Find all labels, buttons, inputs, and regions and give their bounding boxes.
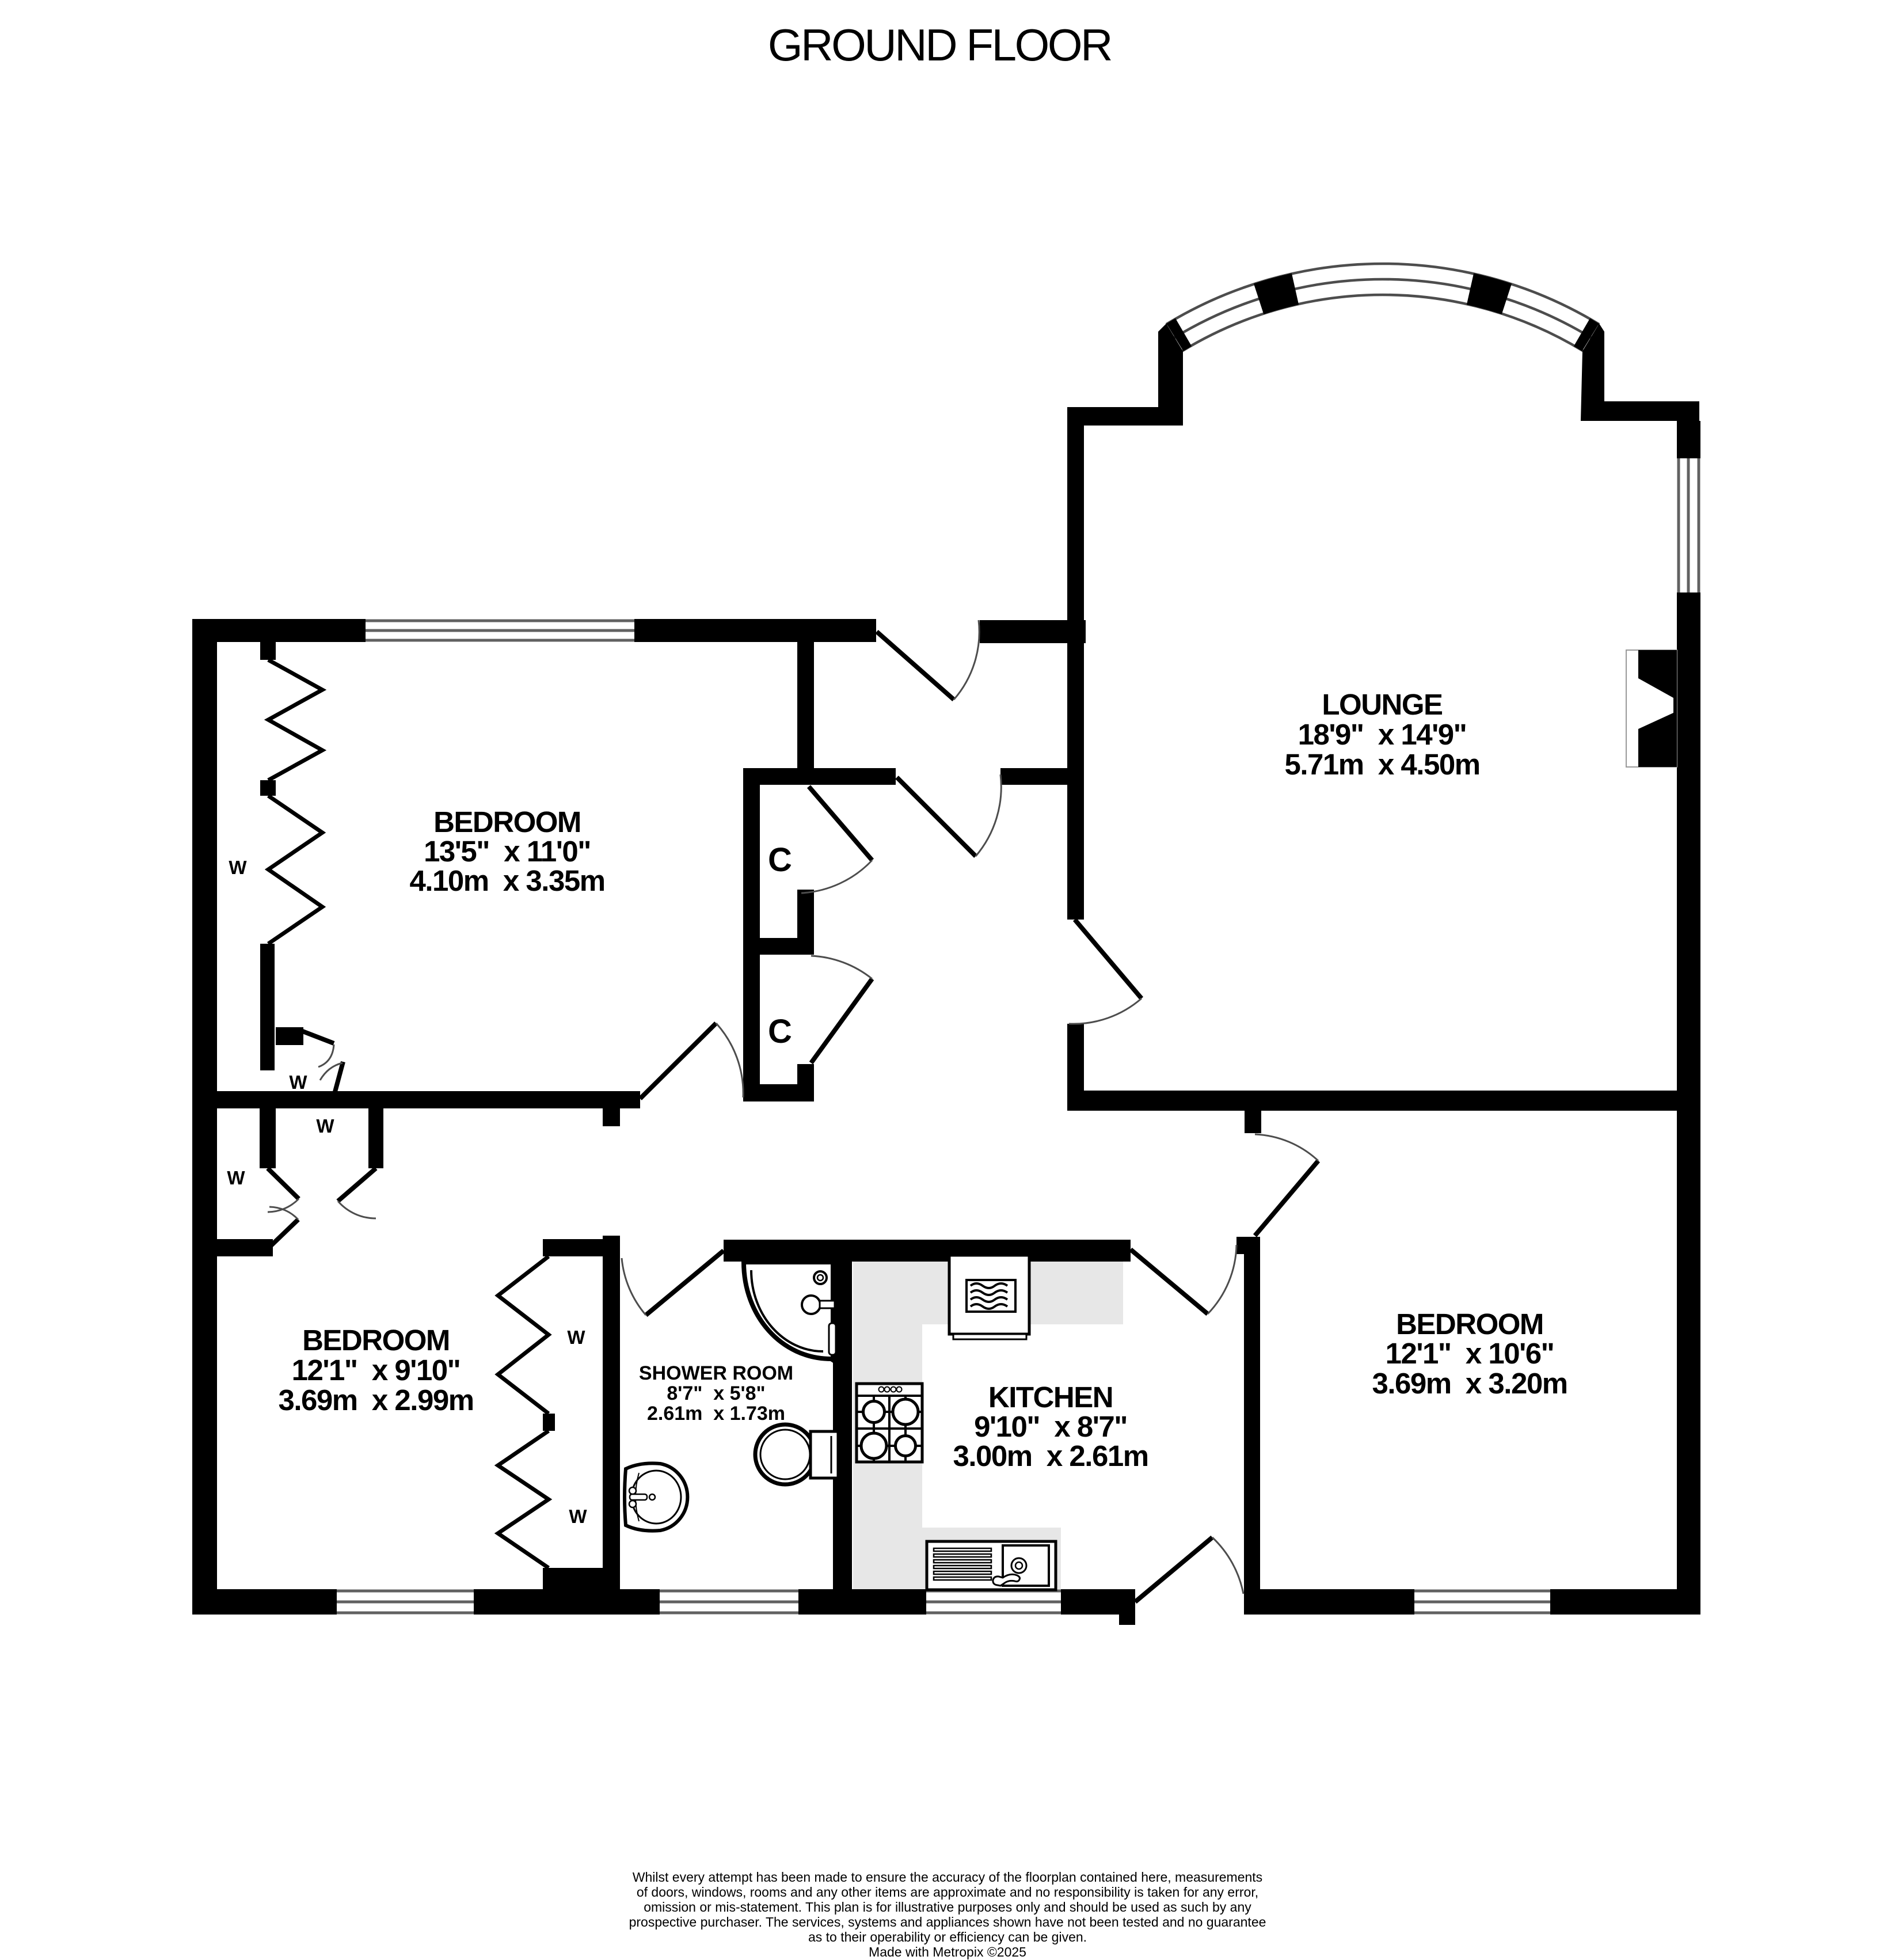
svg-text:W: W (229, 857, 247, 878)
svg-text:omission or mis-statement. Thi: omission or mis-statement. This plan is … (644, 1900, 1251, 1915)
svg-text:Made with Metropix ©2025: Made with Metropix ©2025 (869, 1944, 1026, 1959)
svg-text:KITCHEN: KITCHEN (988, 1381, 1113, 1414)
svg-text:GROUND FLOOR: GROUND FLOOR (768, 20, 1111, 70)
svg-text:BEDROOM: BEDROOM (302, 1324, 450, 1357)
svg-text:C: C (768, 841, 792, 879)
svg-text:W: W (569, 1506, 587, 1527)
svg-text:3.69m x 3.20m: 3.69m x 3.20m (1372, 1367, 1567, 1400)
svg-text:of doors, windows, rooms and a: of doors, windows, rooms and any other i… (637, 1885, 1258, 1900)
svg-text:C: C (768, 1013, 792, 1050)
svg-text:12'1" x 10'6": 12'1" x 10'6" (1386, 1337, 1554, 1370)
svg-text:13'5" x 11'0": 13'5" x 11'0" (424, 835, 591, 868)
svg-text:2.61m x 1.73m: 2.61m x 1.73m (647, 1403, 785, 1425)
svg-text:LOUNGE: LOUNGE (1322, 688, 1443, 721)
svg-text:W: W (289, 1072, 307, 1093)
svg-text:9'10" x 8'7": 9'10" x 8'7" (974, 1410, 1127, 1443)
svg-text:12'1" x 9'10": 12'1" x 9'10" (292, 1354, 461, 1387)
svg-text:BEDROOM: BEDROOM (1396, 1308, 1543, 1340)
svg-text:as to their operability or eff: as to their operability or efficiency ca… (808, 1929, 1087, 1944)
svg-text:W: W (567, 1327, 585, 1348)
svg-text:3.00m x 2.61m: 3.00m x 2.61m (953, 1439, 1148, 1472)
svg-text:W: W (227, 1167, 245, 1188)
svg-text:BEDROOM: BEDROOM (433, 806, 581, 838)
svg-text:SHOWER ROOM: SHOWER ROOM (639, 1362, 793, 1384)
svg-text:18'9" x 14'9": 18'9" x 14'9" (1298, 718, 1467, 751)
svg-text:Whilst every attempt has been: Whilst every attempt has been made to en… (633, 1870, 1262, 1885)
svg-text:8'7" x 5'8": 8'7" x 5'8" (667, 1382, 765, 1404)
svg-text:5.71m x 4.50m: 5.71m x 4.50m (1284, 748, 1479, 781)
svg-text:3.69m x 2.99m: 3.69m x 2.99m (278, 1384, 473, 1416)
svg-text:4.10m x 3.35m: 4.10m x 3.35m (409, 864, 604, 897)
svg-text:prospective purchaser. The ser: prospective purchaser. The services, sys… (629, 1915, 1266, 1929)
svg-text:W: W (316, 1115, 334, 1137)
